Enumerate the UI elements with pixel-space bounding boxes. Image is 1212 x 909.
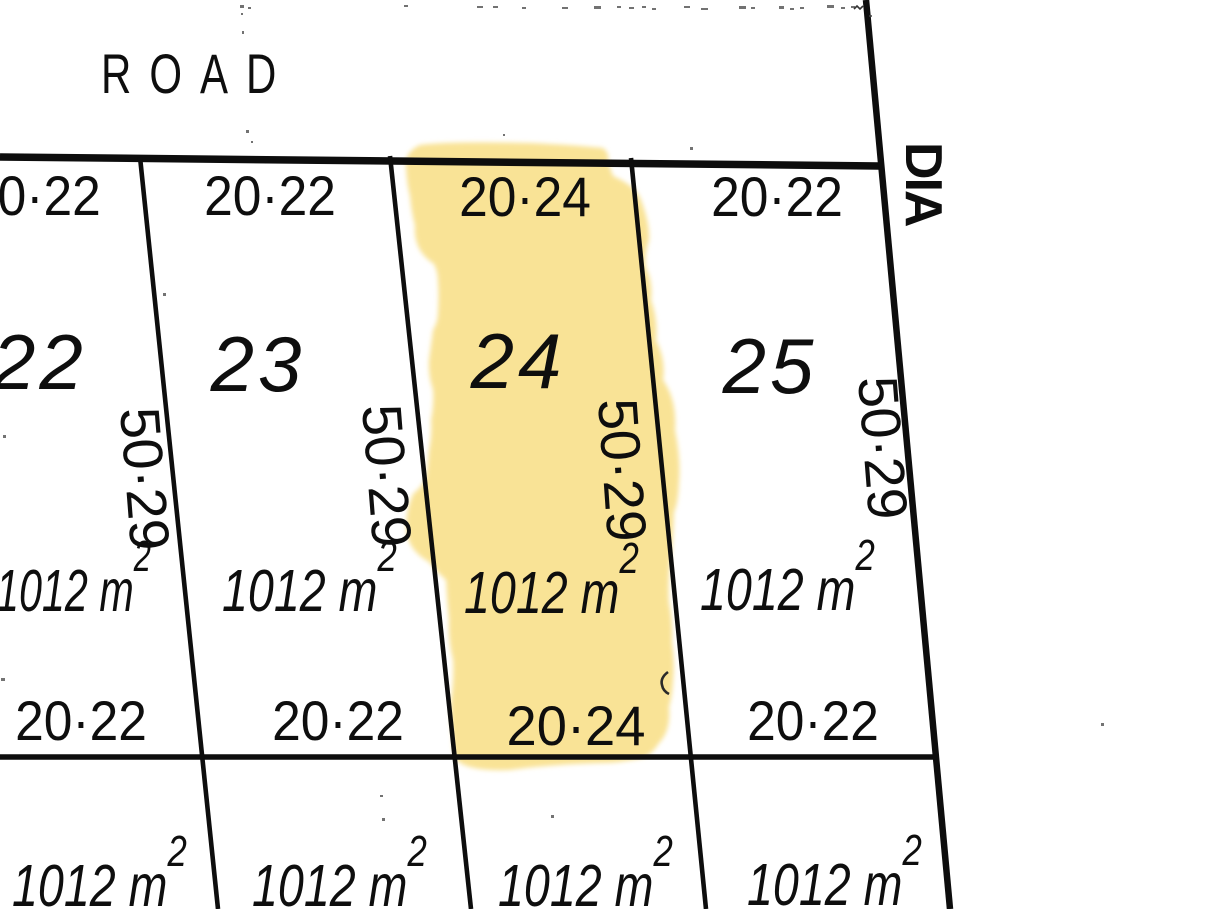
svg-text:DIA: DIA — [894, 142, 952, 227]
svg-text:25: 25 — [722, 322, 818, 410]
svg-text:20·22: 20·22 — [272, 690, 404, 752]
svg-text:20·22: 20·22 — [0, 165, 101, 227]
svg-text:50·29: 50·29 — [108, 405, 182, 553]
svg-text:20·22: 20·22 — [711, 166, 843, 228]
svg-text:50·29: 50·29 — [350, 402, 424, 550]
svg-text:50·29: 50·29 — [846, 374, 920, 522]
svg-text:50·29: 50·29 — [586, 396, 659, 543]
svg-text:20·22: 20·22 — [15, 690, 147, 752]
svg-text:ROAD: ROAD — [101, 43, 294, 105]
svg-text:24: 24 — [470, 317, 566, 405]
svg-text:20·22: 20·22 — [747, 690, 879, 752]
svg-text:20·22: 20·22 — [204, 165, 336, 227]
svg-text:20·24: 20·24 — [507, 694, 646, 757]
svg-text:22: 22 — [0, 318, 87, 406]
svg-text:20·24: 20·24 — [459, 166, 591, 228]
svg-text:23: 23 — [210, 320, 306, 408]
